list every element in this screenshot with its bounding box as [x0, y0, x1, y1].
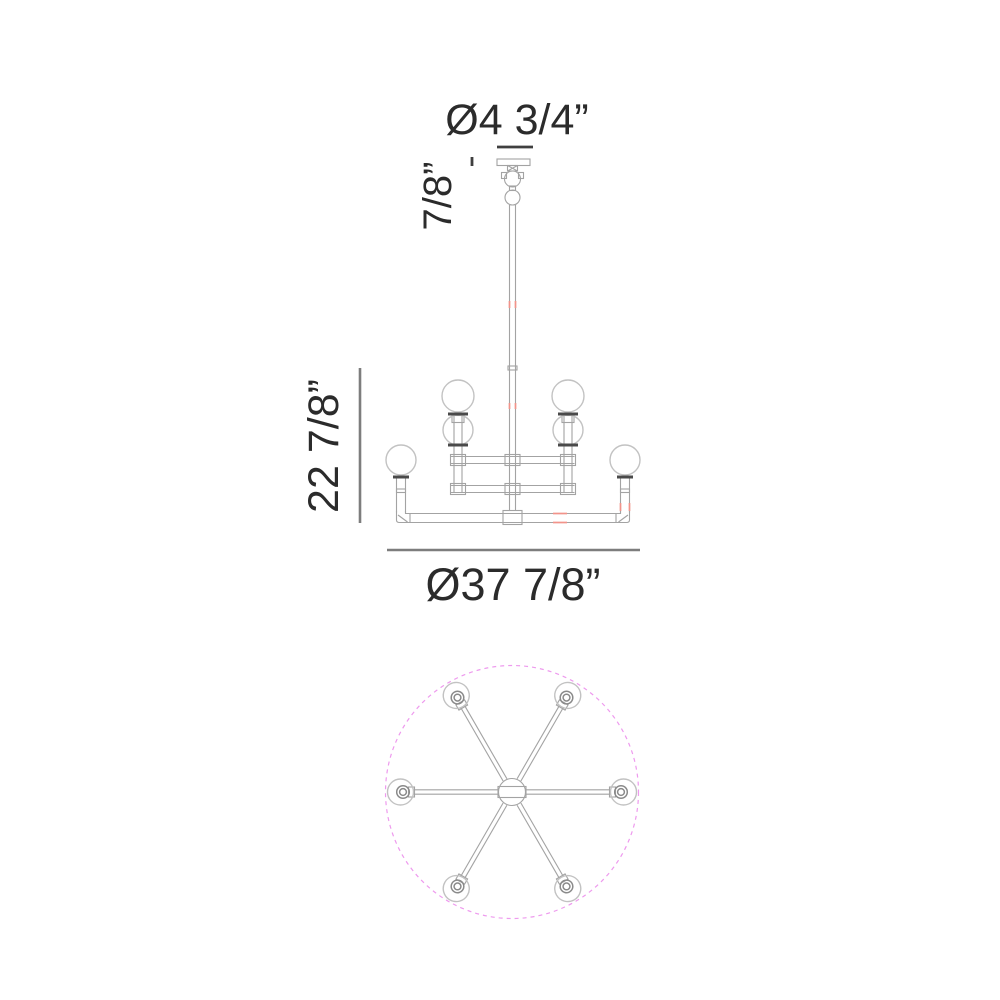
hub-circle [499, 779, 526, 806]
plan-arm-southeast [508, 798, 586, 907]
upper-tier-rails [451, 455, 576, 495]
plan-arm-northeast [508, 678, 586, 787]
plan-arm-southwest [438, 798, 516, 907]
fixture-outline-dashed-circle [386, 666, 639, 919]
drawing-page: Ø4 3/4” 7/8” [0, 0, 1000, 1000]
elbow-right-inner [616, 511, 621, 514]
lower-tier-arm-bar [397, 503, 630, 525]
outer-lamp-right [610, 445, 640, 513]
center-hub [498, 779, 526, 806]
hub-block [498, 787, 526, 798]
swivel-ball [505, 190, 520, 205]
elbow-left [397, 511, 411, 523]
plan-arm-east [526, 779, 637, 805]
upper-lamp-right [552, 380, 584, 493]
elbow-right [616, 511, 630, 523]
plan-view [386, 666, 639, 919]
plan-arm-west [388, 779, 499, 805]
ceiling-canopy [497, 159, 530, 205]
chandelier-dimension-drawing: Ø4 3/4” 7/8” [0, 0, 1000, 1000]
canopy-plate [497, 159, 530, 166]
fixture-diameter-label: Ø37 7/8” [425, 559, 600, 610]
elbow-left-inner [406, 511, 411, 514]
canopy-height-label: 7/8” [416, 162, 460, 231]
elevation-view: Ø4 3/4” 7/8” [300, 96, 640, 610]
elbow-chamfer [398, 515, 408, 522]
elbow-chamfer [619, 515, 629, 522]
canopy-diameter-label: Ø4 3/4” [445, 96, 588, 144]
fixture-height-label: 22 7/8” [300, 379, 348, 513]
plan-arm-northwest [438, 678, 516, 787]
upper-lamp-left [442, 380, 474, 493]
outer-lamp-left [386, 445, 416, 513]
